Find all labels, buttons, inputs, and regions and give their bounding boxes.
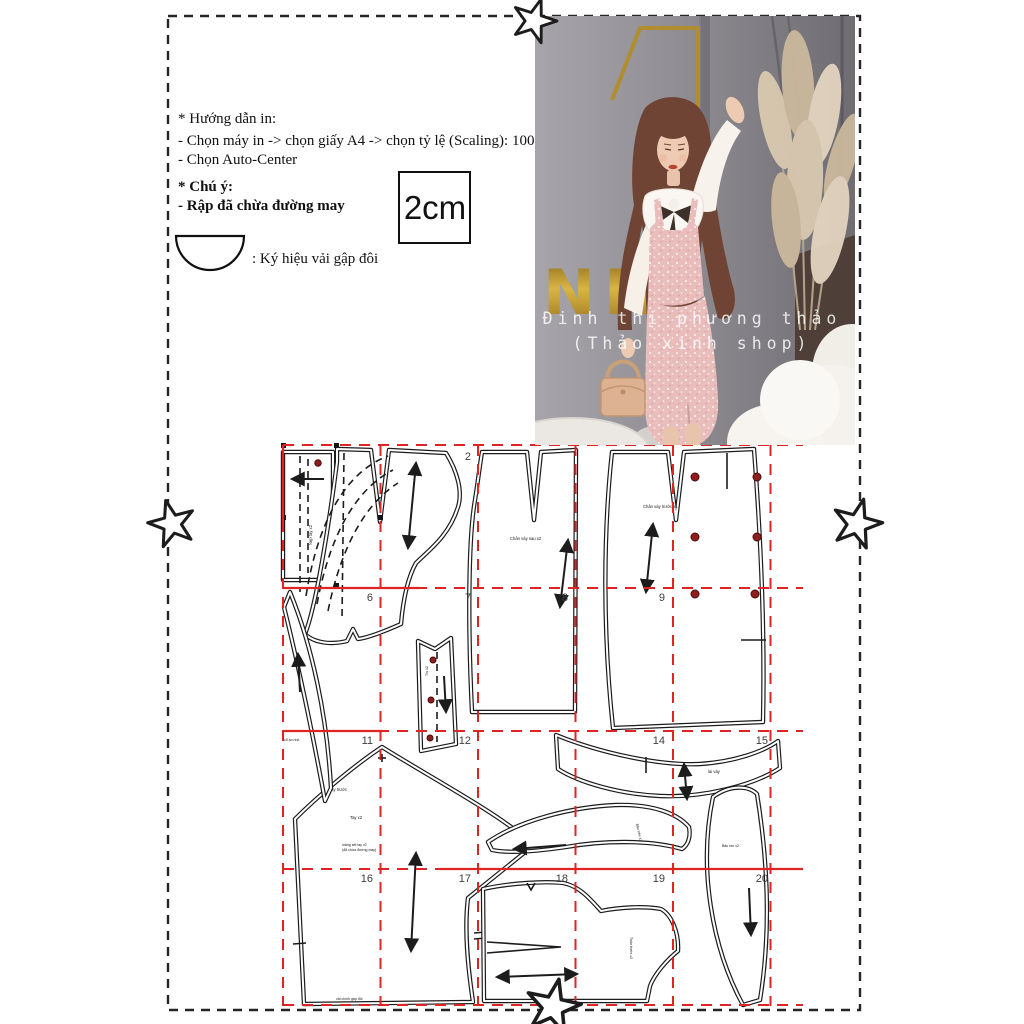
pattern-sheet-page: * Hướng dẫn in: - Chọn máy in -> chọn gi… [0, 0, 1024, 1024]
instructions-line-1: - Chọn máy in -> chọn giấy A4 -> chọn tỷ… [178, 133, 547, 149]
label-collar-band: Bâu lớn x2 [722, 844, 739, 848]
label-cuff-strip: Nẹp tay x2 [308, 524, 313, 545]
page-number: 15 [756, 735, 768, 747]
piece-front-bodice: Thân trước x2 [483, 882, 678, 1001]
model-photo: NH [494, 16, 892, 486]
piece-placket: Trụ x2 [418, 638, 456, 751]
fold-on-fabric-symbol [176, 236, 244, 270]
page-number: 14 [653, 735, 665, 747]
note-heading: * Chú ý: [178, 179, 233, 195]
label-sleeve-note-1: măng sét tay x2 [342, 843, 367, 847]
piece-collar: Bâu trên x2 [488, 805, 690, 852]
button-mark [753, 533, 761, 541]
scale-square-label: 2cm [404, 189, 466, 226]
dress-bodice [648, 221, 704, 306]
page-number: 11 [362, 735, 373, 747]
button-mark [753, 473, 761, 481]
print-instructions: * Hướng dẫn in: - Chọn máy in -> chọn gi… [178, 111, 547, 214]
star-decoration-right [828, 493, 887, 550]
note-line: - Rập đã chừa đường may [178, 198, 345, 214]
button-mark [430, 657, 436, 663]
button-mark [691, 533, 699, 541]
watermark-line-1: Đinh thị phương thảo [543, 309, 842, 328]
page-number: 12 [459, 735, 471, 747]
star-decoration-left [143, 495, 199, 549]
page-number: 18 [556, 873, 568, 885]
page-number: 8 [562, 592, 568, 604]
button-mark [691, 473, 699, 481]
page-number: 19 [653, 873, 665, 885]
instructions-line-2: - Chọn Auto-Center [178, 152, 297, 168]
label-sleeve-fold: vải chính gập đôi [336, 997, 363, 1001]
watermark-line-2: (Thảo xinh shop) [573, 334, 812, 353]
label-neck-facing: cổ áo nhỏ [284, 738, 299, 742]
label-sleeve-note-2: (đã chừa đường may) [342, 848, 376, 852]
piece-collar-band: Bâu lớn x2 [707, 788, 767, 1005]
button-mark [751, 590, 759, 598]
button-mark [315, 460, 321, 466]
page-number: 2 [465, 451, 471, 463]
label-hem-band: lai váy [708, 769, 721, 774]
label-back-skirt: Chân váy sau x2 [510, 536, 542, 541]
button-mark [428, 697, 434, 703]
sheet-canvas: * Hướng dẫn in: - Chọn máy in -> chọn gi… [0, 0, 1024, 1024]
page-number: 20 [756, 873, 768, 885]
page-number: 7 [465, 592, 471, 604]
page-number: 9 [659, 592, 665, 604]
fold-symbol-caption: : Ký hiệu vải gập đôi [252, 251, 378, 267]
handbag [601, 378, 645, 416]
page-number: 17 [459, 873, 471, 885]
fold-symbol-legend: : Ký hiệu vải gập đôi [176, 236, 378, 270]
label-placket: Trụ x2 [425, 666, 429, 676]
button-mark [427, 735, 433, 741]
label-front-bodice: Thân trước x2 [629, 937, 633, 959]
lips [669, 165, 678, 169]
instructions-heading: * Hướng dẫn in: [178, 111, 276, 127]
label-sleeve: Tay x2 [350, 815, 363, 820]
pattern-pieces: Nẹp tay x2 Chân váy sau x2 [281, 443, 780, 1005]
scale-test-box: 2cm [399, 172, 470, 243]
page-number: 6 [367, 592, 373, 604]
piece-back-skirt: Chân váy sau x2 [469, 450, 576, 712]
button-mark [691, 590, 699, 598]
page-number: 16 [361, 873, 373, 885]
